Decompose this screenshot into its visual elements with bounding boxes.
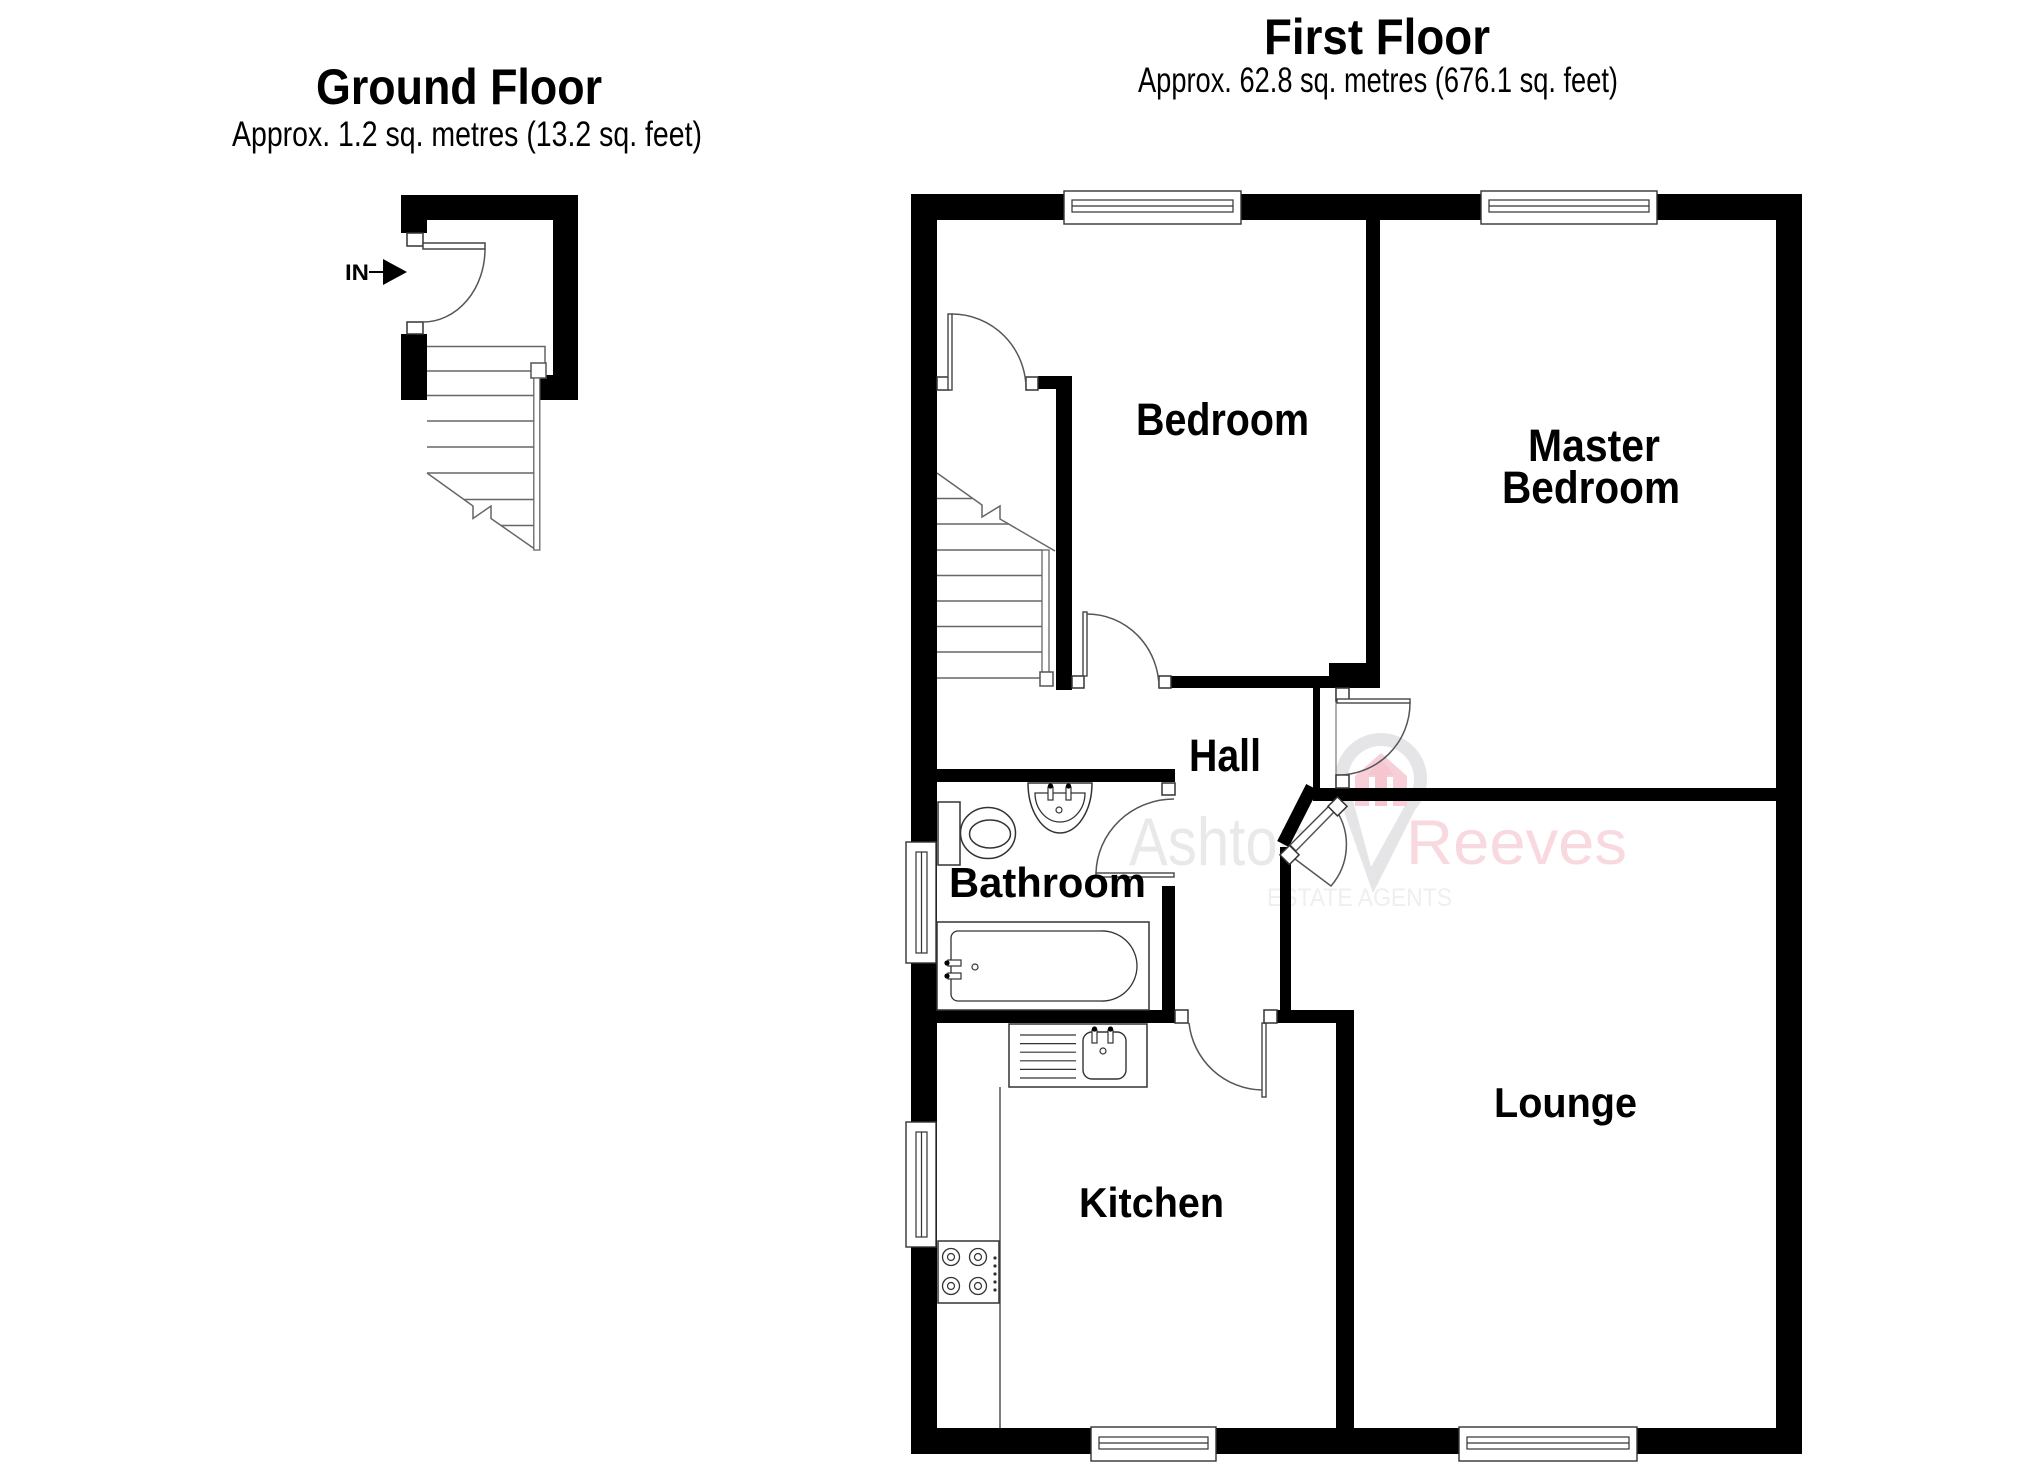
svg-text:Ground Floor: Ground Floor [316, 59, 602, 115]
svg-text:ESTATE AGENTS: ESTATE AGENTS [1267, 884, 1452, 912]
svg-text:Approx. 62.8 sq. metres (676.1: Approx. 62.8 sq. metres (676.1 sq. feet) [1138, 61, 1618, 100]
svg-text:Bedroom: Bedroom [1136, 394, 1309, 445]
svg-text:First Floor: First Floor [1264, 9, 1490, 65]
svg-text:Lounge: Lounge [1494, 1079, 1637, 1126]
svg-text:Bedroom: Bedroom [1502, 462, 1680, 513]
svg-text:Reeves: Reeves [1406, 808, 1627, 878]
svg-text:Kitchen: Kitchen [1079, 1179, 1224, 1226]
svg-text:IN: IN [345, 260, 369, 285]
svg-text:Hall: Hall [1189, 730, 1261, 781]
svg-text:Approx. 1.2 sq. metres (13.2 s: Approx. 1.2 sq. metres (13.2 sq. feet) [232, 115, 702, 154]
svg-text:Bathroom: Bathroom [949, 859, 1146, 906]
